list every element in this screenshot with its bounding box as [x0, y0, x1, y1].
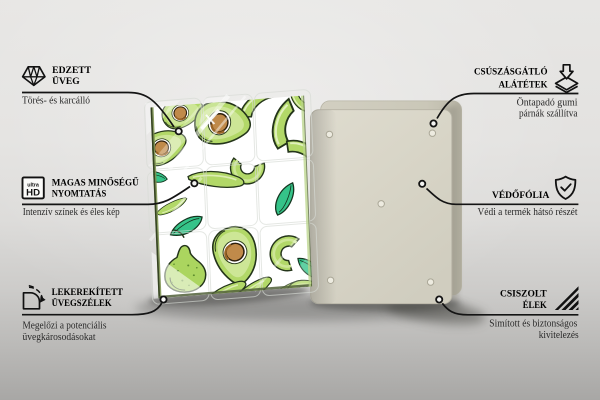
svg-text:Védi a termék hátsó részét: Védi a termék hátsó részét [478, 207, 578, 218]
svg-text:EDZETT: EDZETT [52, 65, 91, 75]
svg-text:NYOMTATÁS: NYOMTATÁS [52, 188, 107, 198]
svg-text:ÉLEK: ÉLEK [523, 300, 548, 310]
svg-text:CSÚSZÁSGÁTLÓ: CSÚSZÁSGÁTLÓ [474, 66, 548, 76]
svg-text:HD: HD [26, 188, 40, 199]
svg-text:CSISZOLT: CSISZOLT [500, 288, 547, 298]
svg-text:MAGAS MINŐSÉGŰ: MAGAS MINŐSÉGŰ [52, 177, 139, 187]
svg-text:Törés- és karcálló: Törés- és karcálló [22, 96, 90, 107]
svg-text:VÉDŐFÓLIA: VÉDŐFÓLIA [492, 190, 550, 200]
svg-text:üvegkárosodásokat: üvegkárosodásokat [23, 332, 96, 343]
svg-text:kivitelezés: kivitelezés [539, 330, 579, 341]
svg-text:LEKEREKÍTETT: LEKEREKÍTETT [52, 287, 123, 297]
svg-text:Öntapadó gumi: Öntapadó gumi [517, 96, 578, 108]
svg-text:Simított és biztonságos: Simított és biztonságos [489, 319, 577, 330]
svg-text:párnák szállítva: párnák szállítva [519, 109, 578, 120]
svg-text:ÜVEG: ÜVEG [52, 76, 79, 86]
svg-text:ÜVEGSZÉLEK: ÜVEGSZÉLEK [52, 298, 113, 308]
svg-text:ALÁTÉTEK: ALÁTÉTEK [499, 79, 549, 89]
svg-text:Intenzív színek és éles kép: Intenzív színek és éles kép [23, 207, 120, 218]
svg-text:Megelőzi a potenciális: Megelőzi a potenciális [23, 320, 107, 331]
